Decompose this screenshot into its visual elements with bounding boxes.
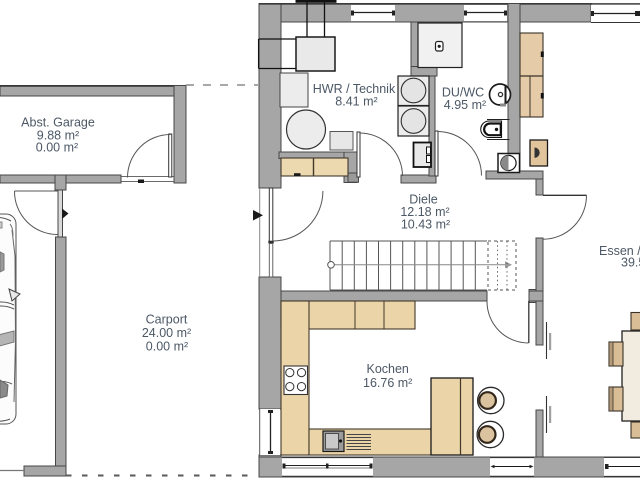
svg-text:16.76 m²: 16.76 m² bbox=[363, 376, 412, 390]
svg-text:10.43 m²: 10.43 m² bbox=[401, 218, 450, 232]
svg-text:39.58 m²: 39.58 m² bbox=[621, 256, 640, 270]
svg-text:Kochen: Kochen bbox=[366, 362, 408, 376]
svg-text:0.00 m²: 0.00 m² bbox=[36, 141, 78, 155]
svg-text:24.00 m²: 24.00 m² bbox=[142, 326, 191, 340]
svg-text:4.95 m²: 4.95 m² bbox=[444, 98, 486, 112]
svg-text:0.00 m²: 0.00 m² bbox=[146, 340, 188, 354]
svg-text:Abst. Garage: Abst. Garage bbox=[21, 116, 95, 130]
svg-text:Carport: Carport bbox=[146, 313, 188, 327]
svg-text:8.41 m²: 8.41 m² bbox=[335, 95, 377, 109]
